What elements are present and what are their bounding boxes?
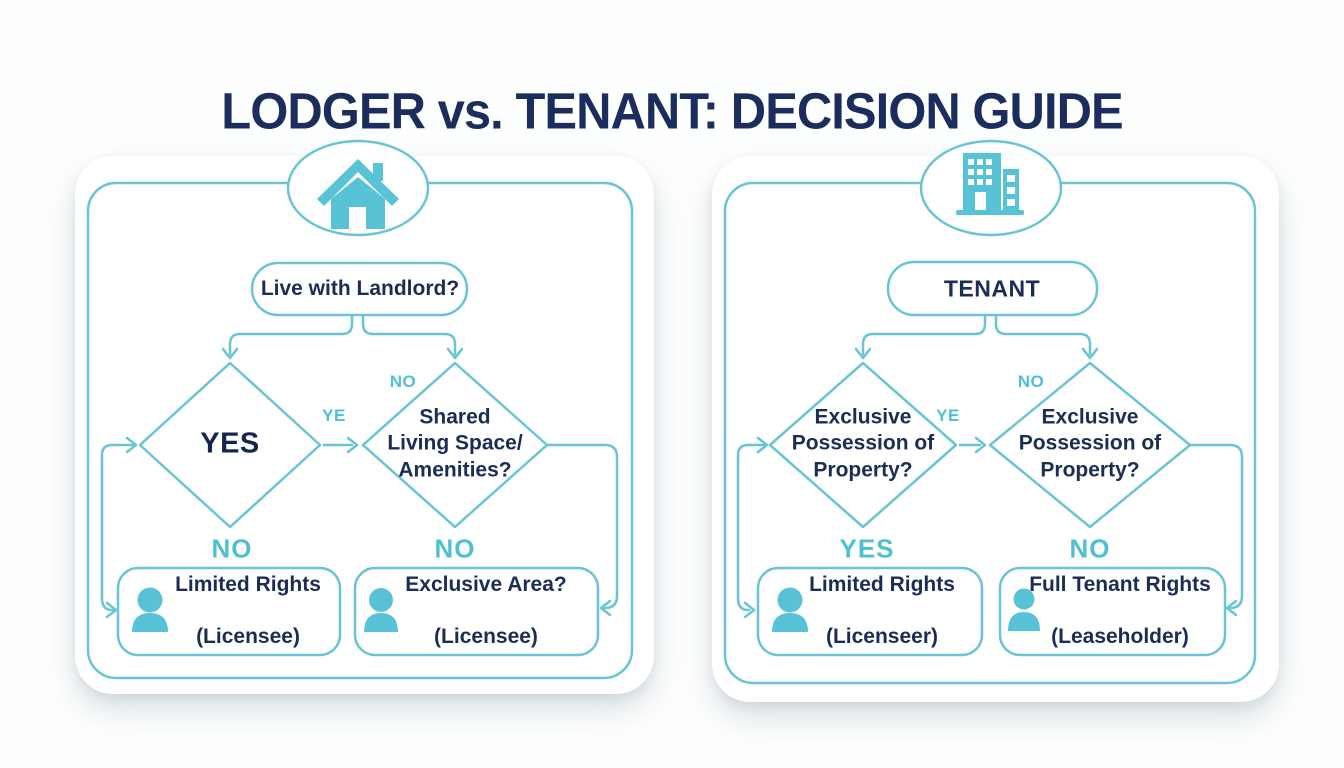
tenant-result-left-label: Limited Rights (Licenseer) bbox=[809, 546, 955, 676]
lodger-edge-label-ye: YE bbox=[322, 406, 346, 426]
result-subtitle: (Licensee) bbox=[405, 624, 566, 650]
result-title: Limited Rights bbox=[175, 572, 321, 598]
result-subtitle: (Licenseer) bbox=[809, 624, 955, 650]
lodger-edge-label-no-top: NO bbox=[390, 372, 417, 392]
tenant-root-label: TENANT bbox=[944, 276, 1040, 303]
tenant-edge-label-no-top: NO bbox=[1018, 372, 1045, 392]
lodger-result-left-label: Limited Rights (Licensee) bbox=[175, 546, 321, 676]
tenant-diamond-left-label: Exclusive Possession of Property? bbox=[792, 404, 934, 483]
result-subtitle: (Leaseholder) bbox=[1029, 624, 1211, 650]
result-title: Full Tenant Rights bbox=[1029, 572, 1211, 598]
lodger-panel bbox=[75, 156, 654, 694]
result-title: Exclusive Area? bbox=[405, 572, 566, 598]
lodger-result-right-label: Exclusive Area? (Licensee) bbox=[405, 546, 566, 676]
tenant-diamond-right-label: Exclusive Possession of Property? bbox=[1019, 404, 1161, 483]
result-subtitle: (Licensee) bbox=[175, 624, 321, 650]
lodger-root-label: Live with Landlord? bbox=[261, 277, 459, 301]
result-title: Limited Rights bbox=[809, 572, 955, 598]
lodger-diamond-shared-label: Shared Living Space/ Amenities? bbox=[387, 404, 522, 483]
lodger-diamond-yes-label: YES bbox=[200, 428, 260, 461]
tenant-result-right-label: Full Tenant Rights (Leaseholder) bbox=[1029, 546, 1211, 676]
tenant-edge-label-ye: YE bbox=[936, 406, 960, 426]
page-title: LODGER vs. TENANT: DECISION GUIDE bbox=[221, 82, 1122, 141]
